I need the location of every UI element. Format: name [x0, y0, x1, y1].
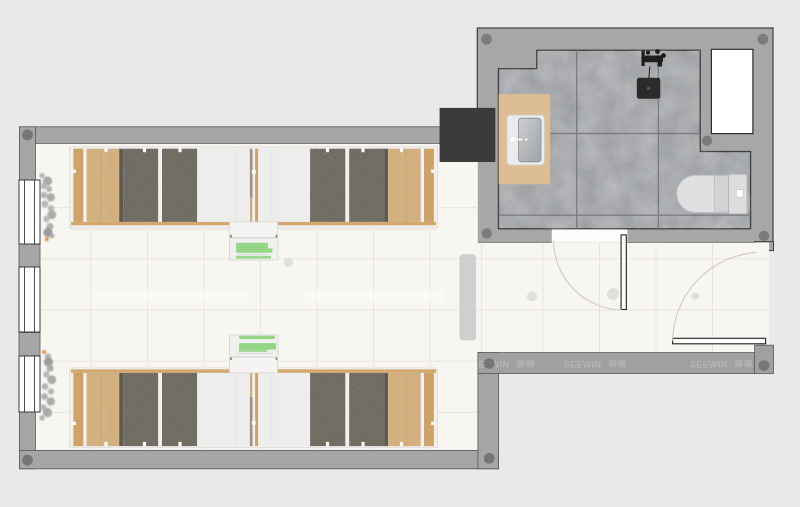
svg-text:SEEWIN: SEEWIN [690, 359, 727, 369]
svg-text:SEEWIN: SEEWIN [564, 359, 601, 369]
